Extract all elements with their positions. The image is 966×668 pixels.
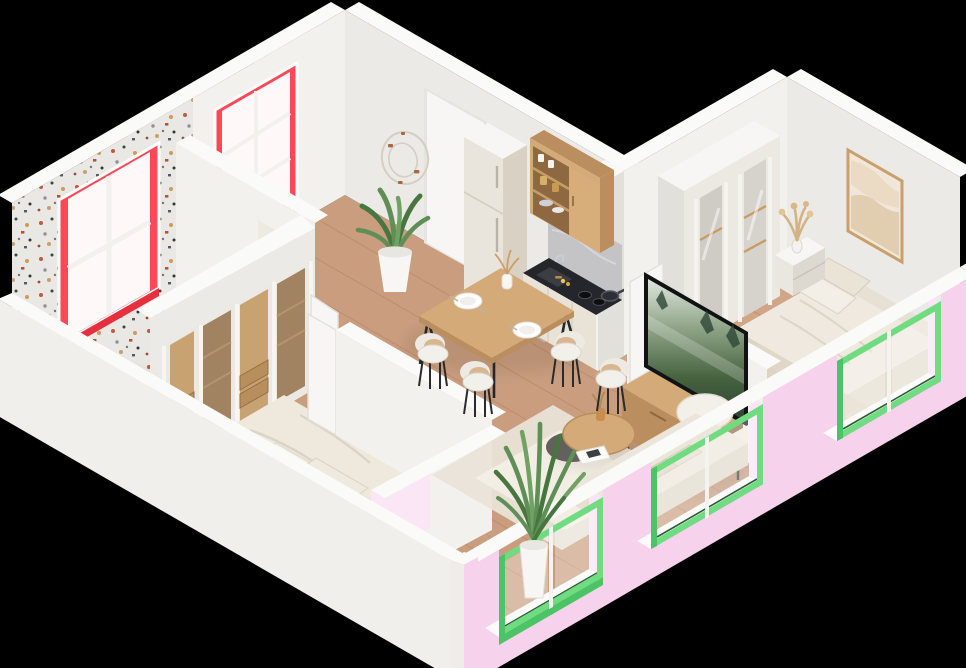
cooking-pan xyxy=(602,291,619,301)
window1-frame-right xyxy=(499,554,505,637)
window3-frame-left xyxy=(935,301,941,385)
window3-frame-right xyxy=(837,358,843,441)
window1-mullion xyxy=(549,526,553,609)
window2-mullion xyxy=(705,436,709,519)
window2-frame-left xyxy=(757,404,763,488)
render-stage: Isometric 3D cutaway floor plan of a one… xyxy=(0,0,966,668)
apartment-isometric-render: Isometric 3D cutaway floor plan of a one… xyxy=(0,0,966,668)
hob-burner-1 xyxy=(579,291,592,298)
hall-plant-pot xyxy=(378,252,412,292)
shelf-side xyxy=(600,170,614,253)
south-cap-pink-face xyxy=(464,557,478,668)
bay-palm-pot xyxy=(520,545,548,598)
bedroom1-open-door xyxy=(308,314,336,435)
window1-frame-left xyxy=(597,497,603,581)
south-cap-white-face xyxy=(450,560,464,668)
bay-palm-pot-rim xyxy=(520,540,548,550)
hall-plant-pot-rim xyxy=(378,246,412,257)
pink-seg-tip xyxy=(478,550,499,668)
pink-seg-east xyxy=(941,275,966,411)
south-corner-cap xyxy=(450,552,478,668)
window2-frame-right xyxy=(651,466,657,549)
window3-mullion xyxy=(887,330,891,413)
